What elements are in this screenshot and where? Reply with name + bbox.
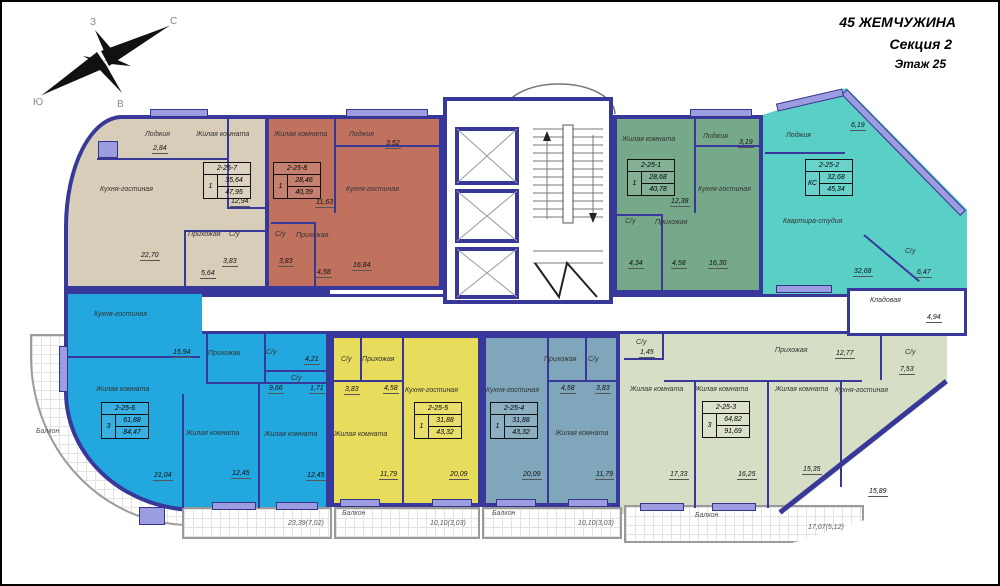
room-area: 5,64 (200, 270, 216, 279)
storage-area: 4,94 (926, 314, 942, 323)
room-area: 7,53 (899, 366, 915, 375)
compass-east: В (117, 99, 124, 110)
window (139, 507, 165, 525)
balcony-label: Балкон (36, 428, 59, 436)
room-area: 12,45 (306, 472, 326, 481)
room-label: Жилая комната (622, 136, 675, 144)
apartment-info-table: 2-25-1 1 28,68 40,78 (627, 159, 675, 196)
compass-rose: С Ю З В (27, 10, 187, 110)
apartment-info-table: 2-25-7 1 35,64 47,95 (203, 162, 251, 199)
room-area: 2,84 (152, 145, 168, 154)
apartment-info-table: 2-25-8 1 28,46 40,39 (273, 162, 321, 199)
room-label: Кухня-гостиная (486, 387, 539, 395)
balcony-area: 10,10(3,03) (430, 520, 466, 528)
room-area: 9,66 (268, 385, 284, 394)
room-area: 4,21 (304, 356, 320, 365)
room-area: 4,58 (383, 385, 399, 394)
floor-title: Этаж 25 (736, 57, 956, 71)
room-area: 21,04 (153, 472, 173, 481)
room-label: С/у (229, 231, 240, 239)
room-label: Прихожая (296, 232, 328, 240)
room-label: С/у (266, 349, 277, 357)
room-area: 11,79 (595, 471, 614, 480)
compass-west: З (90, 17, 96, 28)
room-label: Жилая комната (630, 386, 683, 394)
room-label: С/у (905, 349, 916, 357)
room-area: 1,71 (309, 385, 325, 394)
apartment-info-table: 2-25-6 3 61,88 84,47 (101, 402, 149, 439)
room-label: Кухня-гостиная (100, 186, 153, 194)
room-area: 3,52 (385, 140, 401, 149)
room-area: 4,58 (316, 269, 332, 278)
room-label: Жилая комната (274, 131, 327, 139)
room-label: Кухня-гостиная (698, 186, 751, 194)
room-label: Прихожая (775, 347, 807, 355)
apartment-info-table: 2-25-5 1 31,88 43,32 (414, 402, 462, 439)
window (712, 503, 756, 511)
room-label: Жилая комната (775, 386, 828, 394)
window (98, 141, 118, 158)
room-area: 4,58 (560, 385, 576, 394)
apartment-id: 2-25-5 (415, 403, 461, 415)
room-area: 20,09 (522, 471, 542, 480)
room-label: Прихожая (208, 350, 240, 358)
room-area: 4,34 (628, 260, 644, 269)
room-area: 32,68 (853, 268, 873, 277)
window (496, 499, 536, 507)
apartment-id: 2-25-2 (806, 160, 852, 172)
room-label: Лоджия (703, 133, 728, 141)
apartment-id: 2-25-6 (102, 403, 148, 415)
window (150, 109, 208, 117)
storage-label: Кладовая (870, 297, 901, 305)
apartment-id: 2-25-8 (274, 163, 320, 175)
room-label: Жилая комната (186, 430, 239, 438)
room-label: С/у (905, 248, 916, 256)
window (776, 285, 832, 293)
apartment-info-table: 2-25-3 3 64,82 91,69 (702, 401, 750, 438)
apartment-info-table: 2-25-4 1 31,88 43,32 (490, 402, 538, 439)
room-area: 16,25 (737, 471, 757, 480)
balcony-label: Балкон (695, 512, 718, 520)
apartment-id: 2-25-4 (491, 403, 537, 415)
section-title: Секция 2 (736, 36, 956, 52)
room-label: Жилая комната (334, 431, 387, 439)
room-label: Жилая комната (555, 430, 608, 438)
compass-north: С (170, 16, 177, 27)
apartment-2-25-3[interactable] (620, 334, 947, 514)
room-area: 12,38 (670, 198, 690, 207)
room-label: Лоджия (145, 131, 170, 139)
building-title: 45 ЖЕМЧУЖИНА (736, 14, 956, 30)
balcony-area: 17,07(5,12) (808, 524, 844, 532)
stairs (533, 125, 603, 223)
room-label: Прихожая (655, 219, 687, 227)
room-label: Прихожая (362, 356, 394, 364)
room-label: Кухня-гостиная (94, 311, 147, 319)
room-area: 16,84 (352, 262, 372, 271)
room-area: 3,83 (222, 258, 238, 267)
window (432, 499, 472, 507)
window (690, 109, 752, 117)
room-label: Кухня-гостиная (346, 186, 399, 194)
room-area: 20,09 (449, 471, 469, 480)
balcony-area: 10,10(3,03) (578, 520, 614, 528)
window (212, 502, 256, 510)
room-area: 12,77 (835, 350, 855, 359)
stair-elevator-core (443, 97, 613, 304)
room-area: 15,94 (172, 349, 192, 358)
room-label: Жилая комната (695, 386, 748, 394)
room-area: 6,47 (916, 269, 932, 278)
window (346, 109, 428, 117)
apartment-id: 2-25-7 (204, 163, 250, 175)
room-label: С/у (588, 356, 599, 364)
balcony-area: 23,39(7,02) (288, 520, 324, 528)
room-area: 6,19 (850, 122, 866, 131)
room-area: 3,19 (738, 139, 754, 148)
room-label: Кухня-гостиная (835, 387, 888, 395)
window (276, 502, 318, 510)
room-label: Жилая комната (96, 386, 149, 394)
room-area: 12,45 (231, 470, 251, 479)
room-label: Прихожая (188, 231, 220, 239)
apartment-id: 2-25-1 (628, 160, 674, 172)
room-area: 22,70 (140, 252, 160, 261)
room-area: 15,35 (802, 466, 822, 475)
room-label: С/у (625, 218, 636, 226)
room-area: 16,30 (708, 260, 728, 269)
room-label: С/у (291, 375, 302, 383)
room-area: 3,83 (278, 258, 294, 267)
room-label: Жилая комната (264, 431, 317, 439)
room-area: 11,63 (315, 199, 334, 208)
storage-room (847, 288, 967, 336)
room-label: Кухня-гостиная (405, 387, 458, 395)
balcony-label: Балкон (492, 510, 515, 518)
balcony-label: Балкон (342, 510, 365, 518)
window (340, 499, 380, 507)
plan-header: 45 ЖЕМЧУЖИНА Секция 2 Этаж 25 (736, 14, 956, 71)
compass-south: Ю (33, 97, 43, 108)
room-area: 15,89 (868, 488, 888, 497)
apartment-id: 2-25-3 (703, 402, 749, 414)
room-area: 3,83 (344, 386, 360, 395)
window (640, 503, 684, 511)
room-area: 17,33 (669, 471, 689, 480)
room-area: 11,79 (379, 471, 398, 480)
room-label: Лоджия (786, 132, 811, 140)
room-area: 3,83 (595, 385, 611, 394)
room-area: 4,58 (671, 260, 687, 269)
room-label: Жилая комната (196, 131, 249, 139)
room-label: Прихожая (544, 356, 576, 364)
room-area: 1,45 (639, 349, 655, 358)
room-area: 12,94 (230, 198, 250, 207)
room-label: Лоджия (349, 131, 374, 139)
apartment-info-table: 2-25-2 КС 32,68 45,34 (805, 159, 853, 196)
window (568, 499, 608, 507)
floor-plan: Лоджия 2,84 Жилая комната 12,94 Кухня-го… (0, 0, 1000, 586)
room-label: С/у (636, 339, 647, 347)
window (59, 346, 68, 392)
room-label: Квартира-студия (783, 218, 842, 226)
room-label: С/у (341, 356, 352, 364)
room-label: С/у (275, 231, 286, 239)
